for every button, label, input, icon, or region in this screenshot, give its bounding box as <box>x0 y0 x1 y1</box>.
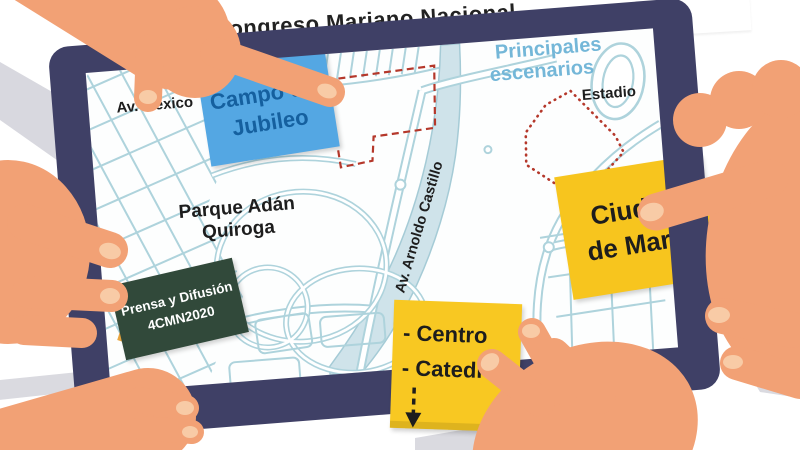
sticky-note-centro-catedral: - Centro - Catedral <box>390 300 522 432</box>
highlight-campo-area <box>327 66 442 168</box>
note-centro-line1: - Centro <box>393 300 489 352</box>
folded-corner <box>679 241 720 282</box>
label-parque-line2: Quiroga <box>201 217 276 244</box>
banner-title: 4° Congreso Mariano Nacional <box>150 0 517 47</box>
dashed-down-arrow-icon <box>402 386 425 429</box>
note-centro-line2: - Catedral <box>391 349 504 388</box>
sticky-note-ciudad-de-maria: Ciudad de María <box>554 154 720 300</box>
sticky-note-campo-del-jubileo: Campo del Jubileo <box>196 50 340 166</box>
label-av-mexico: Av. México <box>116 94 194 117</box>
